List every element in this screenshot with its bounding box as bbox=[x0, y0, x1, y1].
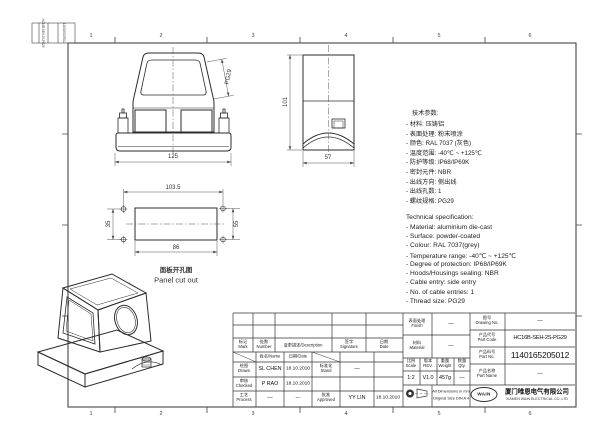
panel-top-dim: 103.5 bbox=[165, 185, 180, 191]
checked-label: 审核 Checked bbox=[236, 379, 253, 389]
drawing-no-value: — bbox=[537, 318, 542, 324]
rev-description-header: 变更描述/Description bbox=[284, 344, 323, 349]
part-name-value: — bbox=[537, 371, 542, 377]
process-label: 工艺 Process bbox=[236, 393, 251, 403]
drawn-label: 绘图 Drawn bbox=[238, 364, 250, 374]
approved-name: YY LIN bbox=[349, 395, 366, 401]
qty-label: 数量 Qty. bbox=[458, 359, 466, 369]
stand-signature: — bbox=[354, 366, 359, 372]
finish-value: — bbox=[448, 321, 453, 327]
drawn-date: 18.10.2010 bbox=[286, 367, 310, 372]
drawing-lines bbox=[0, 0, 600, 424]
specs-en-title: Technical specification: bbox=[406, 214, 473, 221]
dims-note-line1: All Dimensions in mm bbox=[432, 389, 469, 394]
specs-cn-item: - 螺纹规格: PG29 bbox=[406, 196, 454, 205]
border-col-bottom-6: 6 bbox=[528, 411, 531, 417]
part-no-value: 1140165205012 bbox=[511, 350, 569, 360]
border-col-top-5: 5 bbox=[437, 33, 440, 39]
border-col-top-2: 2 bbox=[159, 33, 162, 39]
border-col-bottom-1: 1 bbox=[89, 411, 92, 417]
specs-en-item: - Degree of protection: IP68/IP69K bbox=[406, 261, 507, 268]
specs-cn-item: - 材料: 压铸铝 bbox=[406, 119, 444, 128]
checked-name: P RAO bbox=[262, 381, 279, 387]
stand-label: 标准化 Stand bbox=[320, 364, 333, 374]
rev-date-header: 日期 Date bbox=[380, 340, 389, 350]
corner-strip bbox=[32, 23, 75, 43]
panel-bottom-dim: 86 bbox=[173, 245, 180, 251]
border-col-top-1: 1 bbox=[89, 33, 92, 39]
panel-left-dim: 35 bbox=[106, 221, 112, 228]
part-no-label: 产品料号 Part No. bbox=[479, 350, 496, 360]
front-width-dim: 125 bbox=[168, 154, 178, 160]
finish-label: 表面处理 Finish bbox=[409, 319, 426, 329]
border-col-top-6: 6 bbox=[528, 33, 531, 39]
side-view-dims bbox=[287, 45, 354, 167]
scale-value: 1:2 bbox=[407, 375, 415, 381]
part-code-label: 产品代号 Part Code bbox=[478, 333, 497, 343]
rev-signature-header: 签字 Signature bbox=[340, 340, 358, 350]
iso-view bbox=[38, 274, 163, 387]
sub-name-header: 姓名/Name bbox=[260, 355, 281, 360]
company-logo-text: WAIN bbox=[477, 392, 490, 397]
rev-mark-header: 标记 Mark bbox=[238, 340, 247, 350]
specs-en-item: - Temperature range: -40℃ ~ +125℃ bbox=[406, 252, 516, 260]
border-col-bottom-2: 2 bbox=[159, 411, 162, 417]
specs-cn-item: - 出线方向: 侧出线 bbox=[406, 177, 457, 186]
projection-symbol-icon bbox=[406, 389, 429, 398]
approved-date: 18.10.2010 bbox=[376, 396, 400, 401]
corner-strip-part-code: HC16B-SEH-2S-PG29 bbox=[41, 19, 45, 48]
part-name-label: 产品名称 Part Name bbox=[477, 369, 497, 379]
specs-en-item: - No. of cable entries: 1 bbox=[406, 289, 474, 296]
company-name-en: XIAMEN WAIN ELECTRICAL CO.,LTD bbox=[506, 397, 568, 401]
border-col-bottom-4: 4 bbox=[344, 411, 347, 417]
specs-en-item: - Hoods/Housings sealing: NBR bbox=[406, 270, 499, 277]
border-col-bottom-3: 3 bbox=[251, 411, 254, 417]
dims-note-line2: Original Size DIN A 4 bbox=[433, 396, 469, 401]
specs-cn-item: - 防护等级: IP68/IP69K bbox=[406, 157, 469, 166]
border-col-top-4: 4 bbox=[344, 33, 347, 39]
process-name: — bbox=[267, 395, 272, 401]
material-value: — bbox=[448, 343, 453, 349]
specs-cn-item: - 温度范围: -40℃ ~ +125℃ bbox=[406, 148, 482, 157]
front-view bbox=[116, 53, 231, 151]
specs-en-item: - Cable entry: side entry bbox=[406, 279, 476, 286]
weight-label: 重量 Weight bbox=[439, 359, 452, 369]
side-width-dim: 57 bbox=[325, 155, 332, 161]
drawing-no-label: 图号 Drawing No. bbox=[475, 316, 498, 326]
drawn-name: SL CHEN bbox=[258, 366, 281, 372]
part-code-value: HC16B-SEH-2S-PG29 bbox=[513, 335, 566, 341]
qty-value: — bbox=[459, 375, 464, 381]
side-height-dim: 101 bbox=[283, 97, 289, 107]
drawing-sheet: 1 2 3 4 5 6 1 2 3 4 5 6 HC16B-SEH-2S-PG2… bbox=[0, 0, 600, 424]
process-date: — bbox=[296, 396, 301, 401]
approved-label: 批准 Approved bbox=[317, 393, 335, 403]
frame-ticks bbox=[62, 37, 582, 413]
panel-caption-en: Panel cut out bbox=[154, 276, 198, 285]
specs-cn-item: - 表面处理: 粉末喷涂 bbox=[406, 129, 463, 138]
specs-cn-item: - 颜色: RAL 7037 (灰色) bbox=[406, 138, 471, 147]
panel-right-dim: 55 bbox=[234, 221, 240, 228]
scale-label: 比例 Scale bbox=[406, 359, 416, 369]
specs-en-item: - Material: aluminium die-cast bbox=[406, 224, 492, 231]
specs-en-item: - Thread size: PG29 bbox=[406, 298, 465, 305]
rev-value: V1.0 bbox=[422, 375, 433, 381]
material-label: 材料 Material bbox=[410, 341, 425, 351]
specs-cn-item: - 密封元件: NBR bbox=[406, 167, 451, 176]
specs-en-item: - Surface: powder-coated bbox=[406, 233, 480, 240]
rev-number-header: 处数 Number bbox=[257, 340, 272, 350]
border-col-bottom-5: 5 bbox=[437, 411, 440, 417]
specs-cn-title: 技术参数: bbox=[412, 108, 438, 117]
specs-en-item: - Colour: RAL 7037(grey) bbox=[406, 242, 479, 249]
checked-date: 18.10.2010 bbox=[286, 382, 310, 387]
company-name-cn: 厦门唯恩电气有限公司 bbox=[505, 387, 569, 396]
weight-value: 457g bbox=[439, 375, 451, 381]
corner-strip-part-no: 1140165205012 bbox=[62, 23, 66, 43]
border-col-top-3: 3 bbox=[251, 33, 254, 39]
panel-caption-cn: 面板开孔图 bbox=[160, 264, 193, 274]
rev-label: 版本 REV. bbox=[423, 359, 432, 369]
sub-date-header: 日期/Date bbox=[289, 355, 307, 360]
specs-cn-item: - 出线孔数: 1 bbox=[406, 186, 441, 195]
sheet-frame bbox=[68, 43, 576, 407]
